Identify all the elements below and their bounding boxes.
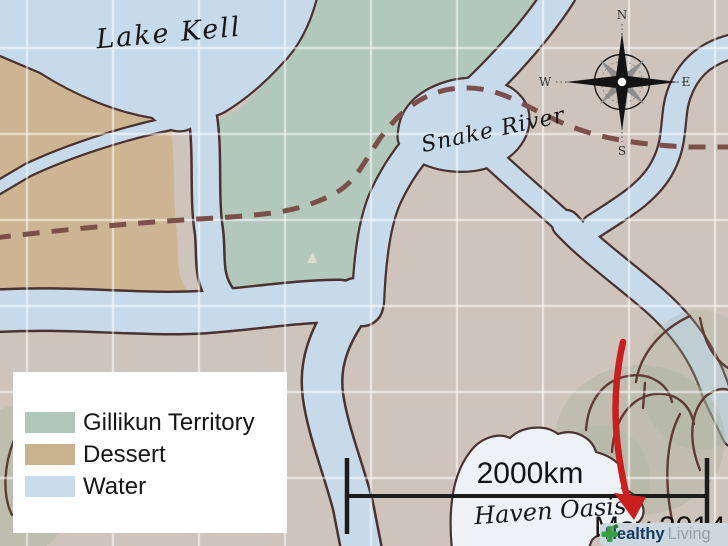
legend-item-water: Water [25, 476, 287, 497]
compass-north-label: N [617, 8, 628, 22]
brand-name-light: Living [668, 525, 711, 544]
map-legend: Gillikun Territory Dessert Water [13, 372, 287, 533]
water-color-swatch [25, 476, 75, 497]
legend-item-dessert: Dessert [25, 444, 287, 465]
legend-label: Dessert [83, 444, 166, 465]
plus-leaf-icon [600, 523, 619, 543]
territory-color-swatch [25, 412, 75, 433]
healthy-living-watermark: Healthy Living [600, 523, 728, 546]
compass-south-label: S [618, 144, 626, 158]
legend-label: Water [83, 476, 146, 497]
compass-west-label: W [539, 75, 552, 89]
legend-item-territory: Gillikun Territory [25, 412, 287, 433]
map-canvas: N E S W Lake Kell Snake River Haven Oasi… [0, 0, 728, 546]
compass-east-label: E [682, 75, 691, 89]
dessert-color-swatch [25, 444, 75, 465]
scale-distance-label: 2000km [430, 457, 630, 491]
legend-label: Gillikun Territory [83, 412, 255, 433]
